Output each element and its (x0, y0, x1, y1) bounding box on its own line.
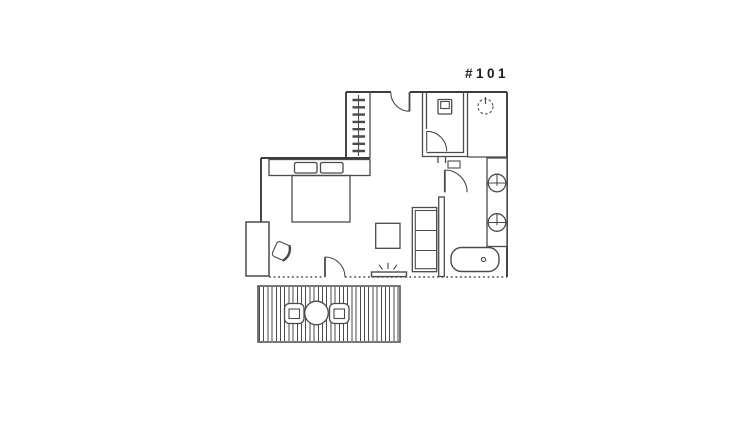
patio-chair-seat (289, 309, 300, 319)
tv-icon (372, 272, 407, 277)
ceiling-light (478, 97, 493, 114)
bathtub (451, 248, 499, 272)
bathtub-icon (451, 248, 499, 272)
wc-step (448, 161, 460, 168)
headboard-shelf (269, 160, 370, 176)
entry-door (391, 92, 410, 112)
closet (353, 95, 366, 156)
tv-signal-rays (379, 263, 397, 270)
sofa-frame (412, 208, 436, 272)
patio-chair-left (285, 304, 305, 324)
terrace-door-swing-icon (325, 257, 345, 277)
sofa (412, 208, 436, 272)
pillow (321, 163, 344, 174)
patio-chair-right (330, 304, 350, 324)
bathroom-door (445, 170, 467, 192)
floorplan-drawing (0, 0, 754, 435)
bed-mattress (292, 176, 350, 223)
bed (269, 160, 370, 223)
door-frame-ticks (438, 157, 446, 163)
vanity-counter (487, 158, 507, 247)
coffee-table-icon (376, 223, 400, 248)
tv (372, 263, 407, 277)
entry-door-swing-icon (391, 93, 410, 112)
toilet-tank (441, 102, 450, 109)
deck (258, 286, 400, 342)
desk-chair (271, 240, 292, 262)
patio-chair-seat (334, 309, 345, 319)
wc-door-swing-icon (427, 131, 447, 151)
vanity (487, 158, 507, 247)
terrace-door (325, 257, 345, 277)
patio-table-icon (305, 301, 329, 325)
desk (246, 222, 269, 276)
bathroom-partition-wall (439, 197, 445, 277)
bathroom-door-swing-icon (445, 170, 467, 192)
floorplan-canvas: #101 (0, 0, 754, 435)
wc-room (423, 92, 468, 168)
pillow (295, 163, 318, 174)
